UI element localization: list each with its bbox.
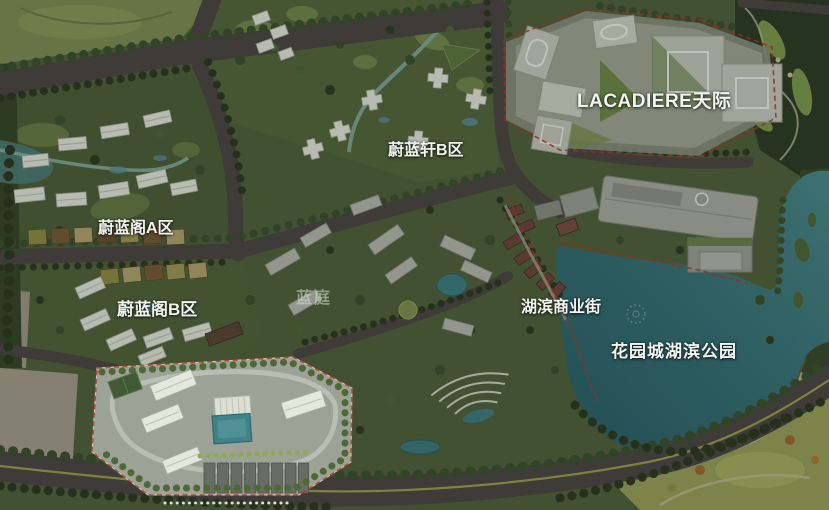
masterplan-rendering (0, 0, 829, 510)
label-lacadiere-tianji: LACADIERE天际 (577, 86, 731, 113)
masterplan-map: LACADIERE天际 蔚蓝轩B区 蔚蓝阁A区 蔚蓝阁B区 湖滨商业街 花园城湖… (0, 0, 829, 510)
parcel-pool (212, 413, 252, 444)
featured-parcel (92, 357, 352, 503)
label-garden-city-lakeside-park: 花园城湖滨公园 (611, 337, 737, 362)
label-weilange-zone-a: 蔚蓝阁A区 (98, 214, 174, 238)
label-lanting-watermark: 蓝庭 (296, 284, 332, 308)
label-lakeside-commercial-street: 湖滨商业街 (521, 293, 601, 317)
label-weilanxuan-zone-b: 蔚蓝轩B区 (388, 136, 464, 160)
label-weilange-zone-b: 蔚蓝阁B区 (117, 295, 197, 320)
